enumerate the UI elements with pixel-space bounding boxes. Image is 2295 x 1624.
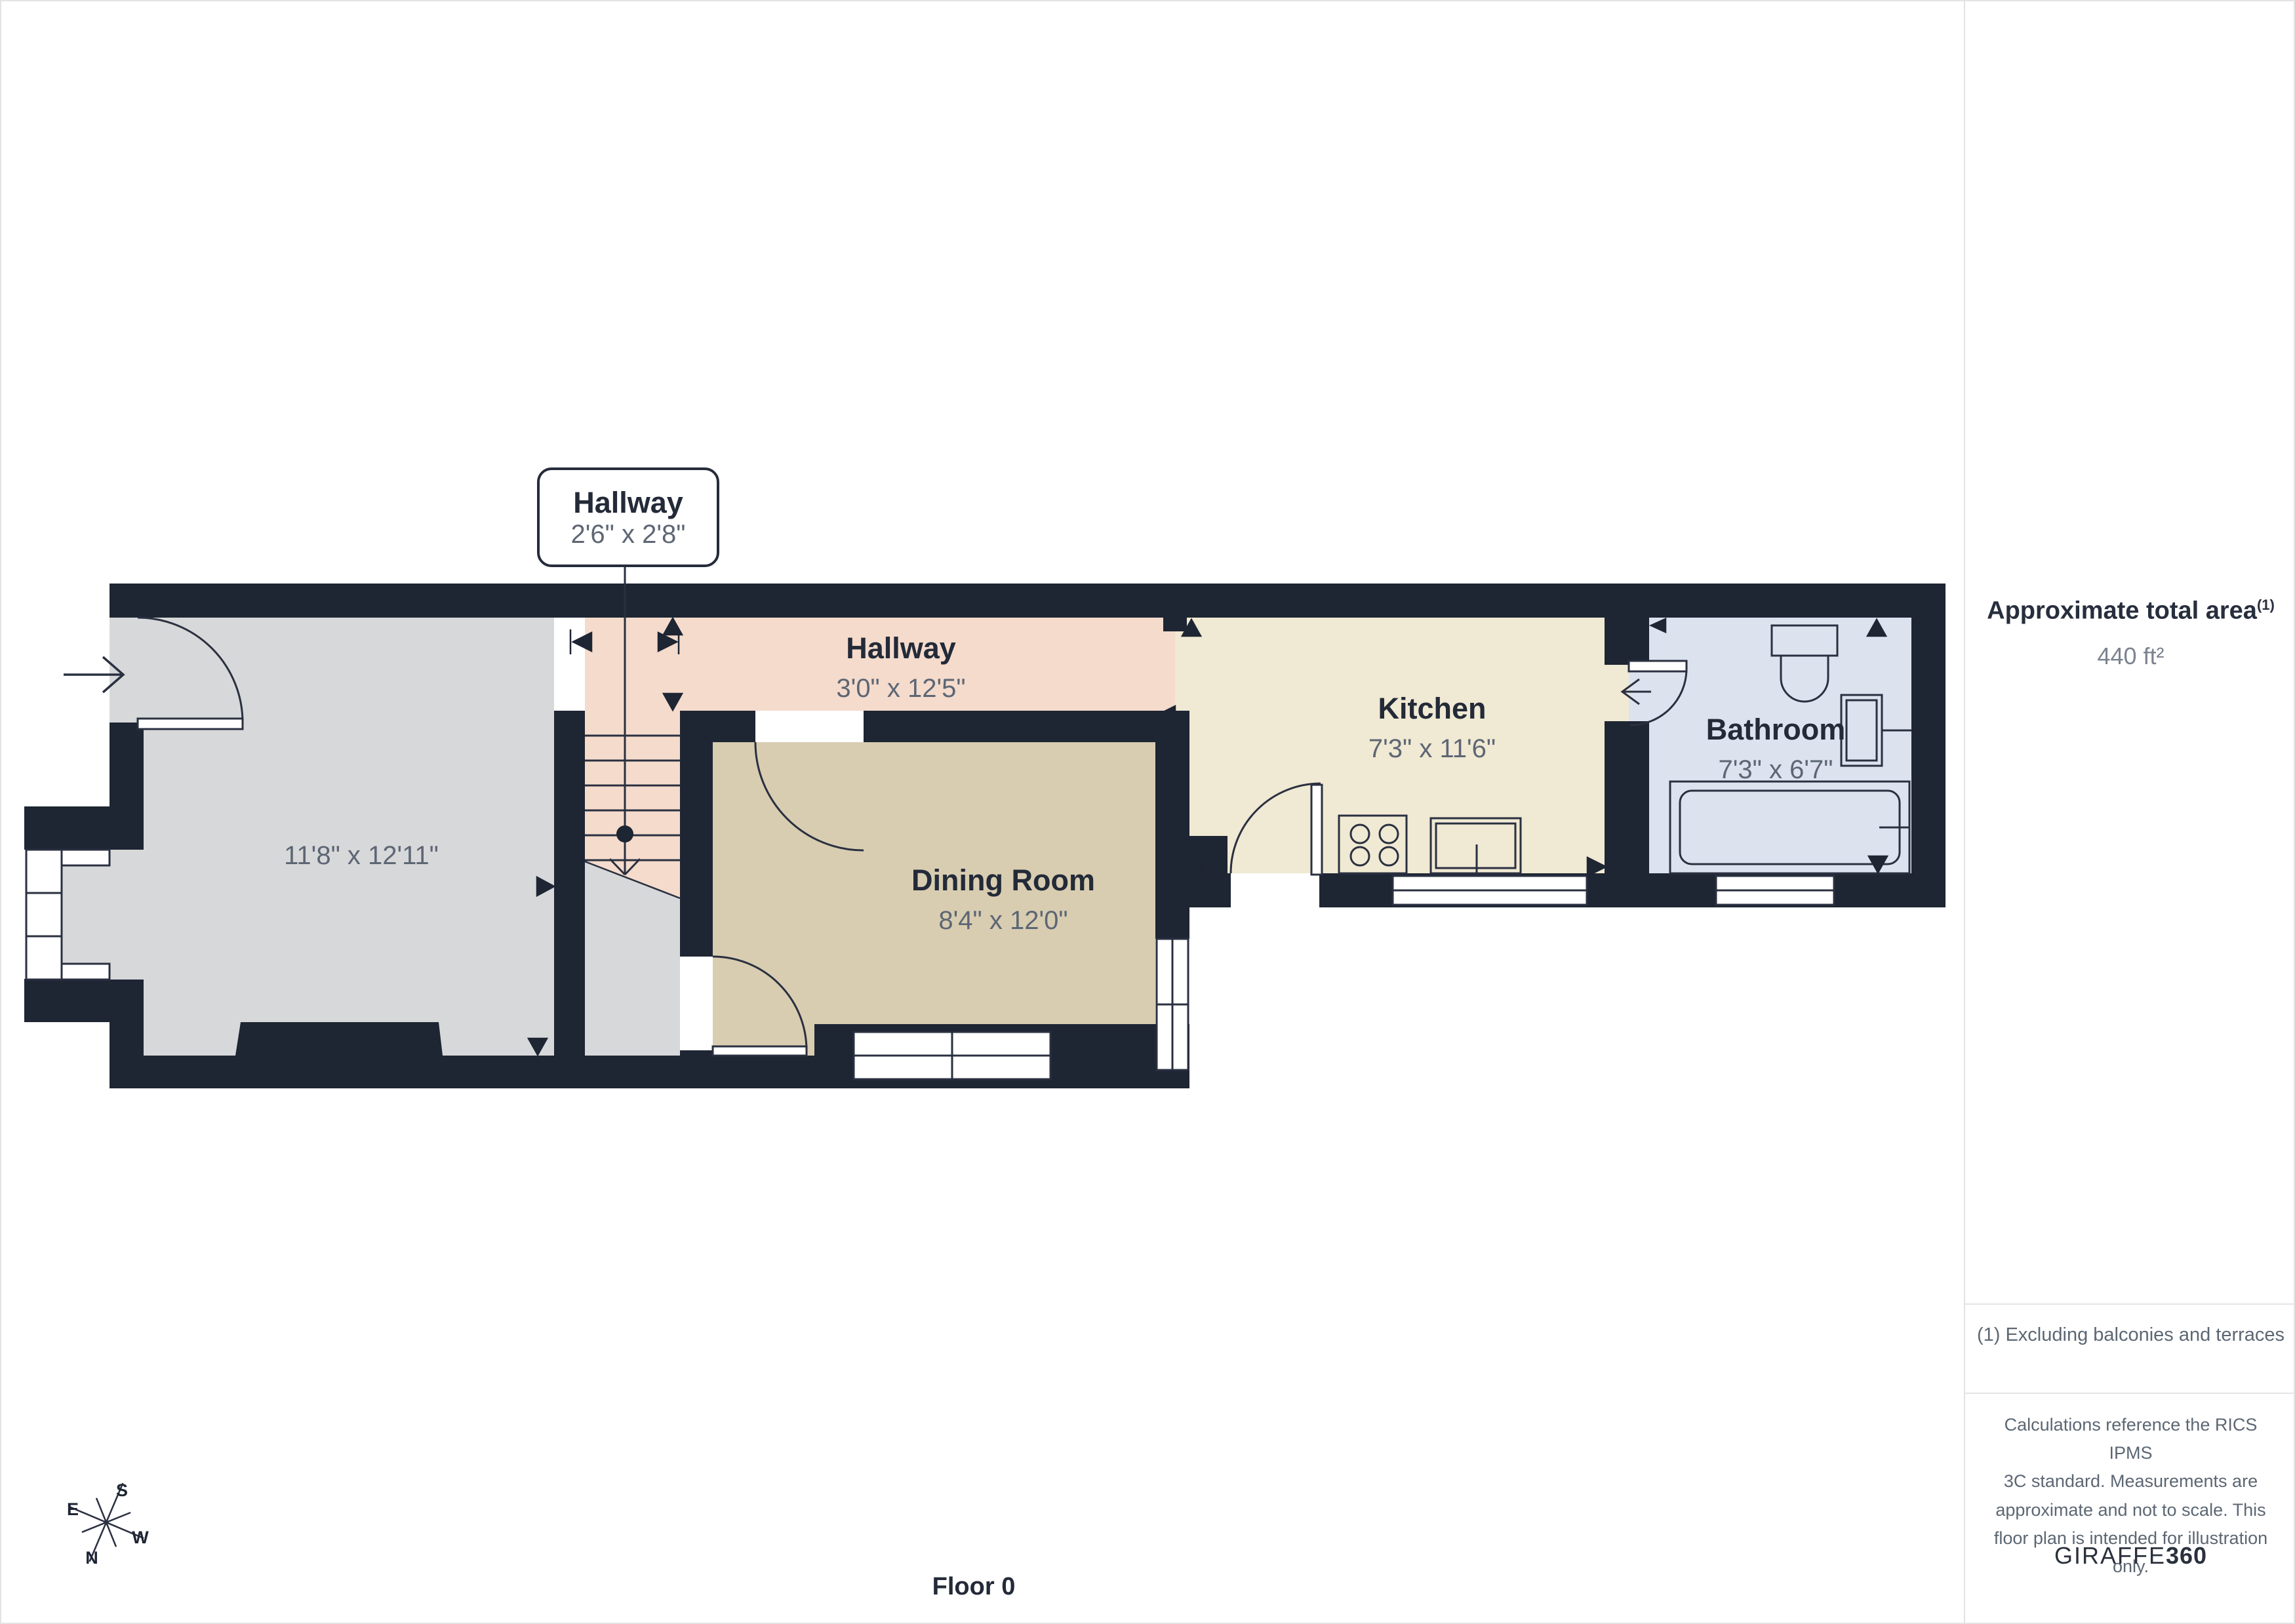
callout-room-dims: 2'6" x 2'8"	[571, 521, 686, 547]
room-name: Dining Room	[911, 864, 1095, 897]
room-dims: 7'3" x 11'6"	[1368, 734, 1496, 763]
total-area-value: 440 ft²	[1965, 643, 2295, 670]
floor-plan-drawing: S E W N	[1, 1, 2295, 1624]
compass-south: S	[116, 1480, 128, 1500]
kitchen-label: Kitchen 7'3" x 11'6"	[1368, 692, 1496, 763]
room-name: Kitchen	[1368, 692, 1496, 725]
hallway-label: Hallway 3'0" x 12'5"	[836, 632, 965, 703]
room-dims: 3'0" x 12'5"	[836, 674, 965, 703]
room-dims: 11'8" x 12'11"	[284, 841, 439, 871]
total-area-title-text: Approximate total area	[1987, 597, 2257, 625]
room-name: Bathroom	[1706, 713, 1846, 746]
total-area-title: Approximate total area(1)	[1965, 597, 2295, 625]
front-door-leaf	[138, 719, 243, 729]
chimney-breast	[235, 1022, 443, 1056]
room-dims: 7'3" x 6'7"	[1706, 755, 1846, 784]
back-door-leaf	[1311, 785, 1322, 875]
area-footnote: (1) Excluding balconies and terraces	[1965, 1324, 2295, 1346]
bay-window-glazing	[26, 850, 62, 980]
compass-labels: S E W N	[67, 1480, 149, 1568]
compass-rose-icon	[69, 1483, 144, 1562]
floor-label: Floor 0	[932, 1573, 1016, 1601]
total-area-block: Approximate total area(1) 440 ft²	[1965, 597, 2295, 670]
bathroom-door-leaf	[1629, 661, 1686, 671]
sidebar-divider	[1965, 1303, 2295, 1305]
hallway-callout: Hallway 2'6" x 2'8"	[537, 467, 719, 567]
sidebar-divider	[1965, 1393, 2295, 1394]
dining-room-label: Dining Room 8'4" x 12'0"	[911, 864, 1095, 935]
compass-east: E	[67, 1499, 79, 1519]
footnote-marker: (1)	[2257, 597, 2275, 613]
room-name: Hallway	[836, 632, 965, 665]
bathroom-label: Bathroom 7'3" x 6'7"	[1706, 713, 1846, 784]
understairs-door-leaf	[713, 1046, 807, 1056]
brand-suffix: 360	[2166, 1542, 2207, 1569]
brand-name: GIRAFFE	[2054, 1542, 2166, 1569]
callout-room-name: Hallway	[573, 488, 683, 517]
compass-west: W	[132, 1528, 149, 1547]
floorplan-page: S E W N Hallway 2'6" x 2'8" Hallway 3'0"…	[0, 0, 2295, 1624]
info-sidebar: Approximate total area(1) 440 ft² (1) Ex…	[1964, 1, 2295, 1624]
living-room-label: 11'8" x 12'11"	[284, 841, 439, 871]
giraffe360-logo: GIRAFFE360	[1965, 1542, 2295, 1570]
room-dims: 8'4" x 12'0"	[911, 906, 1095, 935]
compass-north: N	[85, 1548, 98, 1568]
walk-line-start-dot	[616, 825, 633, 842]
